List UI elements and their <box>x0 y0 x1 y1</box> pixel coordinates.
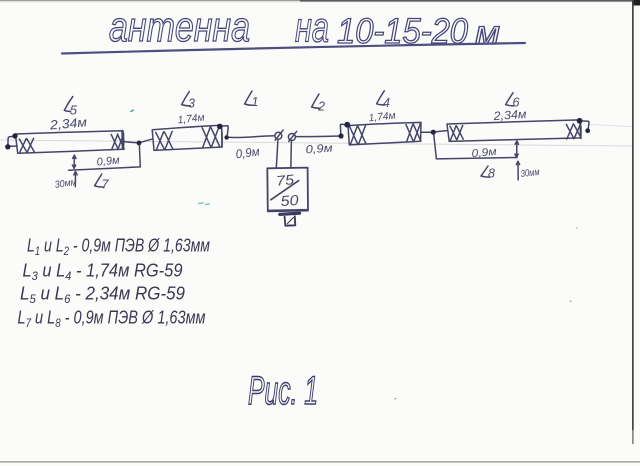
svg-text:1: 1 <box>252 95 259 109</box>
svg-text:0,9м: 0,9м <box>235 144 261 161</box>
svg-text:L1 и L2 - 0,9м ПЭВ Ø 1,63мм: L1 и L2 - 0,9м ПЭВ Ø 1,63мм <box>27 236 210 259</box>
svg-text:50: 50 <box>280 193 299 210</box>
svg-text:2: 2 <box>317 100 325 114</box>
svg-text:L5 и L6 - 2,34м RG-59: L5 и L6 - 2,34м RG-59 <box>20 284 185 307</box>
svg-text:0,9м: 0,9м <box>96 154 121 168</box>
svg-text:м: м <box>475 14 500 51</box>
svg-text:4: 4 <box>383 96 390 110</box>
svg-text:L3 и L4 - 1,74м RG-59: L3 и L4 - 1,74м RG-59 <box>23 261 183 284</box>
svg-text:на: на <box>295 4 329 51</box>
svg-text:антенна: антенна <box>109 3 250 50</box>
svg-text:8: 8 <box>488 167 495 181</box>
svg-text:2,34м: 2,34м <box>492 107 527 123</box>
svg-text:3: 3 <box>188 97 195 111</box>
svg-text:7: 7 <box>102 178 110 192</box>
svg-text:0,9м: 0,9м <box>305 143 333 157</box>
svg-text:75: 75 <box>275 171 295 189</box>
svg-text:5: 5 <box>70 103 78 118</box>
svg-text:L7 и L8 - 0,9м ПЭВ Ø 1,63мм: L7 и L8 - 0,9м ПЭВ Ø 1,63мм <box>18 308 206 331</box>
svg-text:30мм: 30мм <box>520 167 540 180</box>
svg-text:0,9м: 0,9м <box>471 146 497 160</box>
svg-text:Рис. 1: Рис. 1 <box>248 369 318 413</box>
svg-text:6: 6 <box>513 96 520 110</box>
